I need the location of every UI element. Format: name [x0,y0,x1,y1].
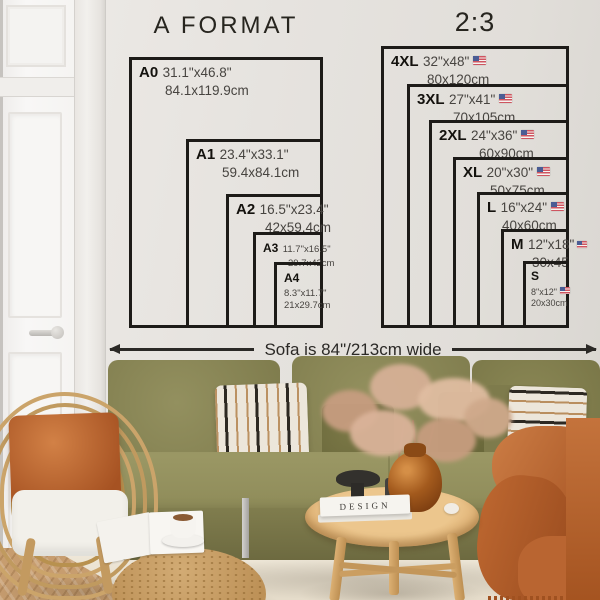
size-inches: 11.7"x16.5" [283,244,331,255]
size-label: 3XL [417,91,445,108]
us-flag-icon [560,287,570,294]
door-panel-upper [8,112,62,318]
us-flag-icon [537,167,550,176]
us-flag-icon [577,241,587,248]
door-handle-rosette [51,326,64,339]
size-cm: 84.1x119.9cm [165,83,318,99]
size-label: A1 [196,146,215,163]
sofa-leg [242,498,249,558]
size-inches: 16.5"x23.4" [260,202,329,217]
door-top-rail [0,77,74,97]
size-label: M [511,236,524,253]
arrow-left [110,348,254,350]
size-inches: 16"x24" [501,200,547,215]
book-spine-text: DESIGN [339,500,390,512]
size-cm: 59.4x84.1cm [222,165,318,181]
size-inches: 12"x18" [528,237,574,252]
size-label: 4XL [391,53,419,70]
size-label: XL [463,164,482,181]
size-cm: 21x29.7cm [284,300,318,312]
a-format-title: A FORMAT [106,12,346,40]
design-book: DESIGN [320,494,411,516]
size-inches: 8.3"x11.7" [284,288,318,300]
us-flag-icon [551,202,564,211]
arrow-right [452,348,596,350]
size-label: L [487,199,496,216]
coffee [173,514,193,521]
sofa-width-label: Sofa is 84"/213cm wide [261,340,444,360]
size-inches: 32"x48" [423,54,469,69]
size-inches: 8"x12" [531,287,566,299]
size-inches: 27"x41" [449,92,495,107]
us-flag-icon [473,56,486,65]
size-inches: 24"x36" [471,128,517,143]
ratio-title: 2:3 [381,7,569,38]
size-label: A2 [236,201,255,218]
size-box-s: S 8"x12" 20x30cm [523,261,569,328]
size-label: S [531,269,539,283]
sofa-width-annotation: Sofa is 84"/213cm wide [110,340,596,359]
us-flag-icon [499,94,512,103]
size-label: A3 [263,241,278,255]
size-inches: 23.4"x33.1" [220,147,289,162]
throw-fringe [488,596,564,600]
us-flag-icon [521,130,534,139]
size-label: A4 [284,271,299,285]
door-transom-panel [6,5,66,67]
size-inches: 31.1"x46.8" [163,65,232,80]
poster-size-guide-image: DESIGN A FORMAT 2:3 A0 31.1"x46.8" 84.1x… [0,0,600,600]
size-cm: 20x30cm [531,298,566,310]
size-label: A0 [139,64,158,81]
size-inches: 20"x30" [487,165,533,180]
size-label: 2XL [439,127,467,144]
decor-egg [444,503,459,514]
size-box-a4: A4 8.3"x11.7" 21x29.7cm [274,262,323,328]
